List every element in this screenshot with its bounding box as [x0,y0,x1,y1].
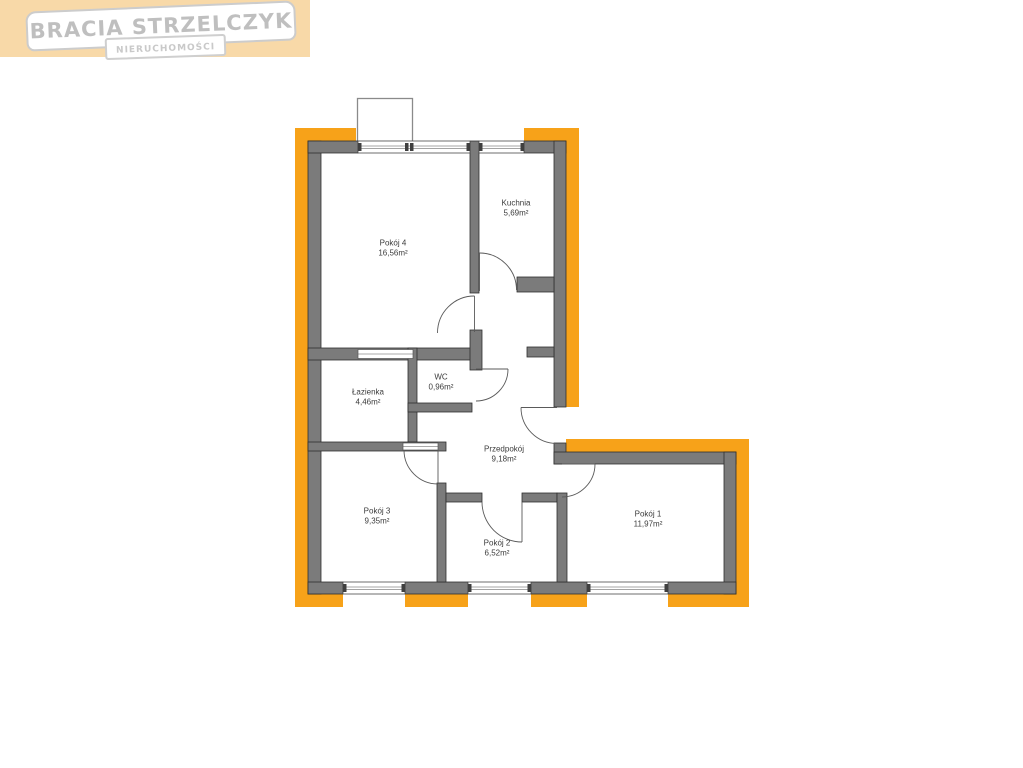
windows-bottom [343,582,668,594]
room-area: 4,46m² [352,398,384,408]
room-name: Pokój 4 [378,239,407,249]
windows-top [358,141,524,153]
room-area: 0,96m² [429,383,454,393]
balcony [358,99,413,142]
room-label-pokoj1: Pokój 1 11,97m² [634,510,663,531]
room-name: Łazienka [352,388,384,398]
room-name: Pokój 1 [634,510,663,520]
room-area: 11,97m² [634,520,663,530]
room-area: 5,69m² [502,209,531,219]
room-label-pokoj2: Pokój 2 6,52m² [484,539,511,560]
room-name: Pokój 2 [484,539,511,549]
room-label-kuchnia: Kuchnia 5,69m² [502,199,531,220]
room-name: Przedpokój [484,445,524,455]
room-area: 16,56m² [378,249,407,259]
floorplan-drawing [0,0,1023,768]
room-label-pokoj3: Pokój 3 9,35m² [364,507,391,528]
room-area: 9,35m² [364,517,391,527]
floorplan: Pokój 4 16,56m² Kuchnia 5,69m² WC 0,96m²… [0,0,1023,768]
room-label-pokoj4: Pokój 4 16,56m² [378,239,407,260]
page: BRACIA STRZELCZYK NIERUCHOMOŚCI [0,0,1023,768]
room-name: Pokój 3 [364,507,391,517]
room-name: WC [429,373,454,383]
room-label-przedpokoj: Przedpokój 9,18m² [484,445,524,466]
room-area: 6,52m² [484,549,511,559]
room-label-wc: WC 0,96m² [429,373,454,394]
room-name: Kuchnia [502,199,531,209]
room-label-lazienka: Łazienka 4,46m² [352,388,384,409]
room-area: 9,18m² [484,455,524,465]
